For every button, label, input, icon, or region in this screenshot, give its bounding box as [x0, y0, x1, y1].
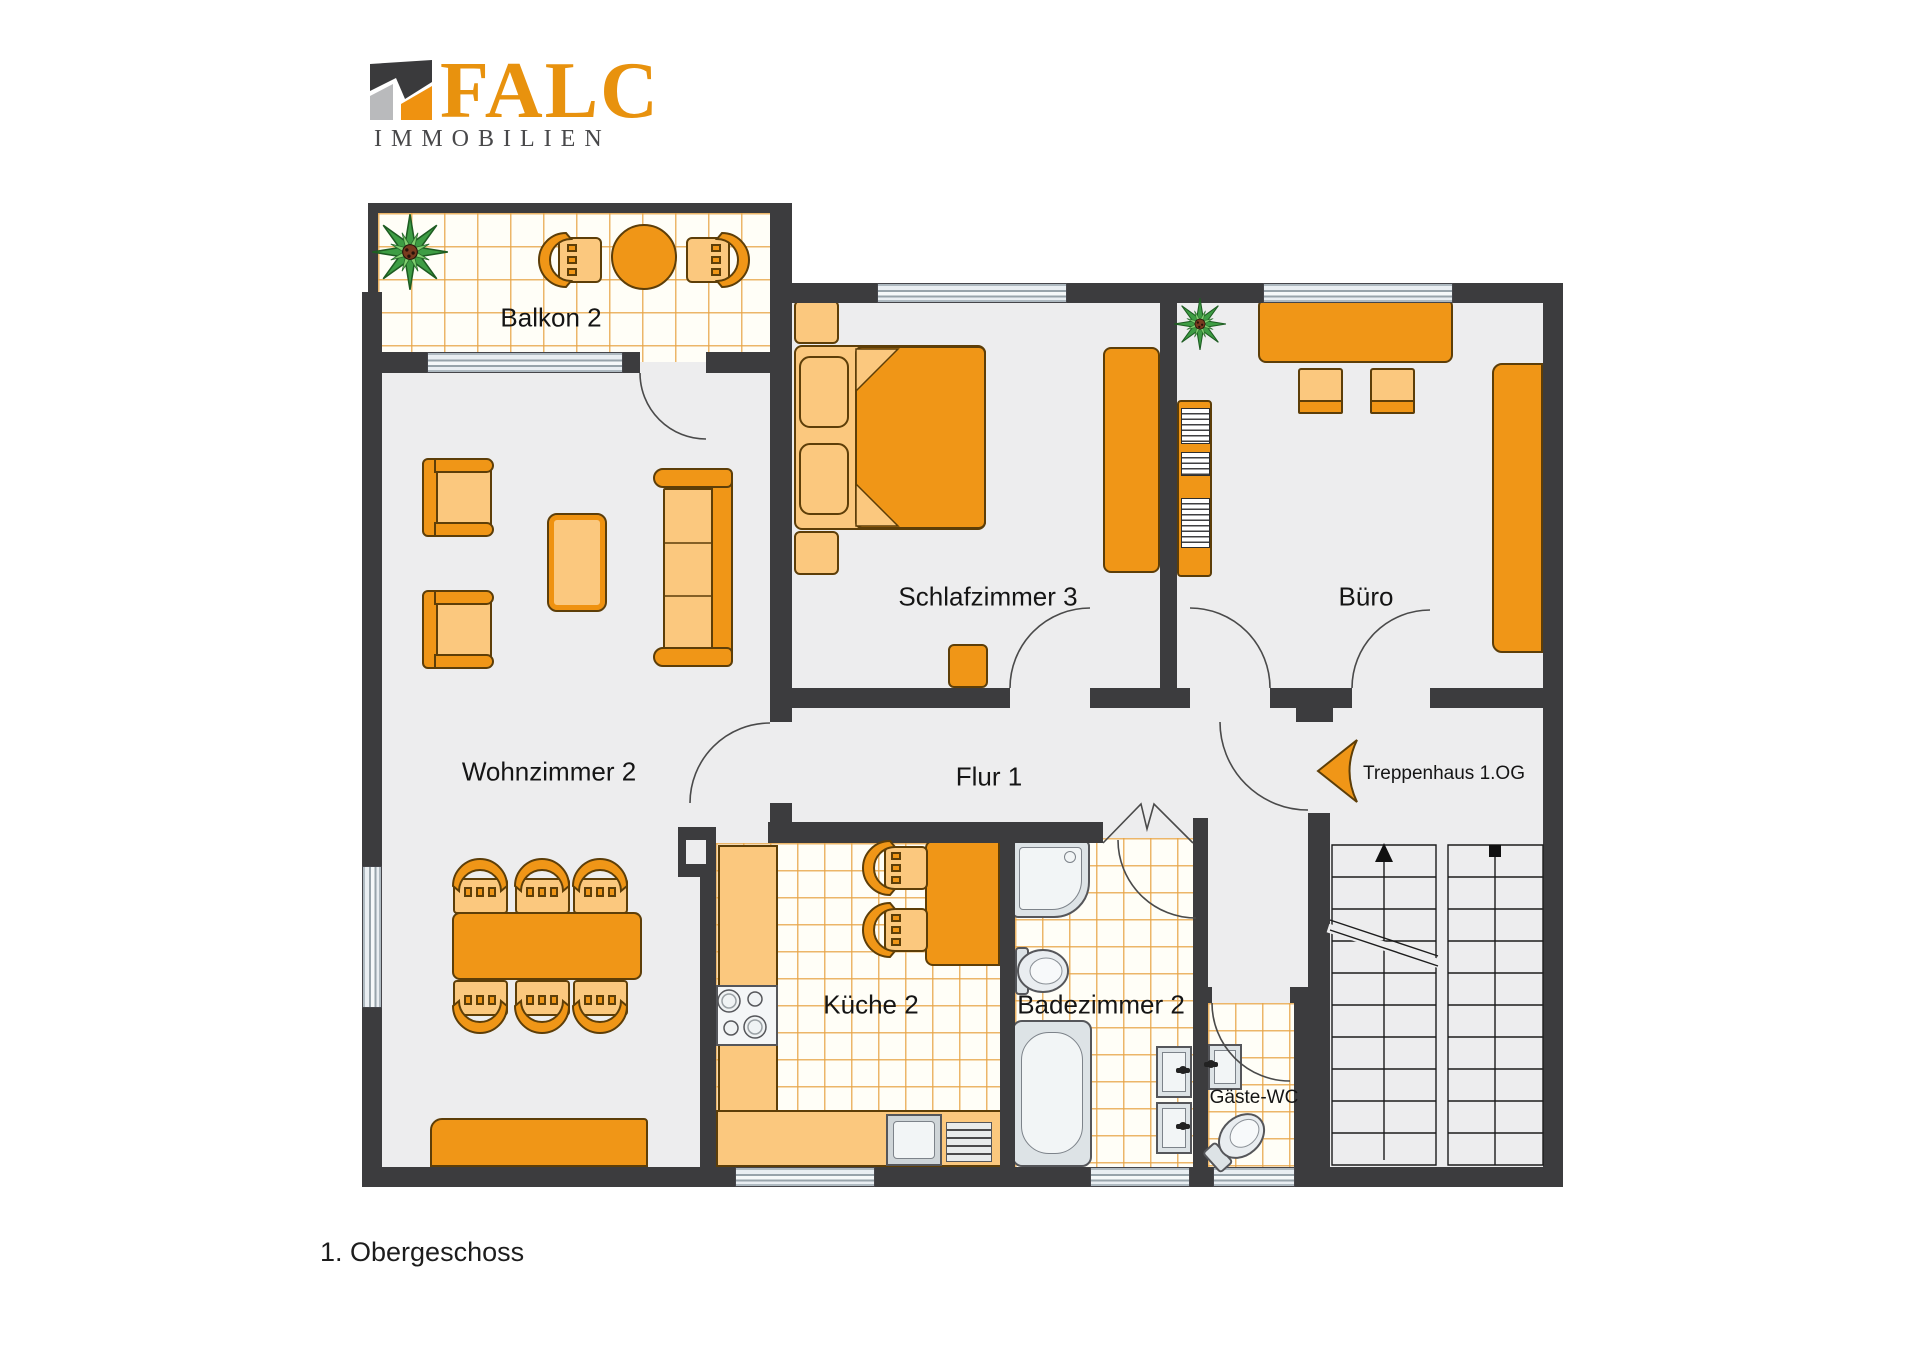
wall-segment: [1296, 708, 1333, 722]
kitchen-sink-basin: [893, 1121, 935, 1159]
kitchen-chair: [884, 908, 928, 952]
window: [1090, 1167, 1190, 1187]
wall-segment: [1295, 1167, 1563, 1187]
wall-segment: [1190, 1167, 1213, 1187]
wall-segment: [368, 203, 378, 292]
window: [877, 283, 1067, 303]
wall-segment: [1000, 822, 1015, 1167]
falc-roof-icon: [368, 58, 434, 122]
wall-segment: [1543, 283, 1563, 1187]
armchair-armrest: [434, 590, 494, 605]
wall-segment: [1430, 688, 1543, 708]
balcony-chair-left: [558, 237, 602, 283]
wall-segment: [1308, 813, 1330, 1167]
room-label-balkon: Balkon 2: [500, 303, 601, 334]
window: [362, 866, 382, 1008]
balcony-round-table: [611, 224, 677, 290]
dining-chair: [453, 980, 508, 1016]
kitchen-table: [925, 840, 1000, 966]
kitchen-chair: [884, 846, 928, 890]
armchair-armrest: [434, 458, 494, 473]
wall-segment: [1090, 688, 1190, 708]
office-chair-seat-edge: [1298, 400, 1343, 414]
room-label-badezimmer: Badezimmer 2: [1017, 990, 1185, 1021]
wall-segment: [1270, 688, 1352, 708]
wall-segment: [623, 352, 640, 373]
room-label-schlafzimmer: Schlafzimmer 3: [898, 582, 1077, 613]
sideboard: [430, 1118, 648, 1167]
wall-segment: [875, 1167, 1090, 1187]
window: [427, 352, 623, 373]
wc-sink-basin: [1214, 1050, 1236, 1084]
stove: [716, 985, 778, 1046]
balcony-chair-right: [686, 237, 730, 283]
books: [1181, 452, 1210, 476]
brand-subtitle: IMMOBILIEN: [374, 126, 611, 153]
room-label-gaeste-wc: Gäste-WC: [1210, 1087, 1299, 1109]
wall-duct-niche: [686, 840, 706, 864]
window: [1263, 283, 1453, 303]
bathtub-basin: [1021, 1032, 1083, 1154]
wall-segment: [1290, 987, 1310, 1003]
room-label-kueche: Küche 2: [823, 990, 918, 1021]
wall-segment: [706, 352, 772, 373]
room-label-buero: Büro: [1339, 582, 1394, 613]
sofa-armrest: [653, 468, 733, 488]
wall-segment: [1067, 283, 1263, 303]
floor-plan-page: FALC IMMOBILIEN: [0, 0, 1920, 1357]
room-label-treppenhaus: Treppenhaus 1.OG: [1363, 763, 1525, 785]
floor-title: 1. Obergeschoss: [320, 1237, 524, 1268]
nightstand: [794, 531, 839, 575]
dining-chair: [573, 878, 628, 914]
brand-name: FALC: [440, 46, 660, 137]
wall-segment: [770, 203, 792, 722]
coffee-table: [547, 513, 607, 612]
sofa-armrest: [653, 647, 733, 667]
window: [735, 1167, 875, 1187]
wall-segment: [772, 283, 877, 303]
books: [1181, 498, 1210, 548]
double-bed: [794, 345, 986, 530]
shower-drain: [1064, 851, 1076, 863]
armchair-armrest: [434, 522, 494, 537]
wall-segment: [700, 877, 716, 1167]
wall-segment: [1294, 1003, 1308, 1167]
dining-chair: [515, 980, 570, 1016]
wall-segment: [368, 203, 790, 213]
balcony-tile-floor: [378, 213, 790, 362]
wall-segment: [362, 292, 382, 1187]
kitchen-counter-left: [718, 845, 778, 1112]
dining-chair: [453, 878, 508, 914]
books: [1181, 408, 1210, 444]
window: [1213, 1167, 1295, 1187]
bedroom-wardrobe: [1103, 347, 1160, 573]
nightstand: [794, 300, 839, 344]
wall-segment: [362, 352, 427, 373]
room-label-flur: Flur 1: [956, 762, 1022, 793]
bathroom-sink-basin: [1162, 1108, 1186, 1148]
wall-segment: [772, 688, 1010, 708]
dining-chair: [573, 980, 628, 1016]
wall-segment: [768, 822, 1103, 843]
sofa-body: [663, 488, 713, 649]
dishwasher: [946, 1122, 992, 1162]
wall-segment: [362, 1167, 735, 1187]
room-label-wohnzimmer: Wohnzimmer 2: [462, 757, 636, 788]
bathroom-sink-basin: [1162, 1052, 1186, 1092]
dining-chair: [515, 878, 570, 914]
dining-table: [452, 912, 642, 980]
sofa-back: [711, 470, 733, 667]
office-chair-seat-edge: [1370, 400, 1415, 414]
armchair-armrest: [434, 654, 494, 669]
wall-segment: [1160, 303, 1177, 688]
bedroom-chest: [948, 644, 988, 688]
wall-segment: [1193, 987, 1212, 1003]
office-desk: [1258, 298, 1453, 363]
office-wardrobe: [1492, 363, 1543, 653]
